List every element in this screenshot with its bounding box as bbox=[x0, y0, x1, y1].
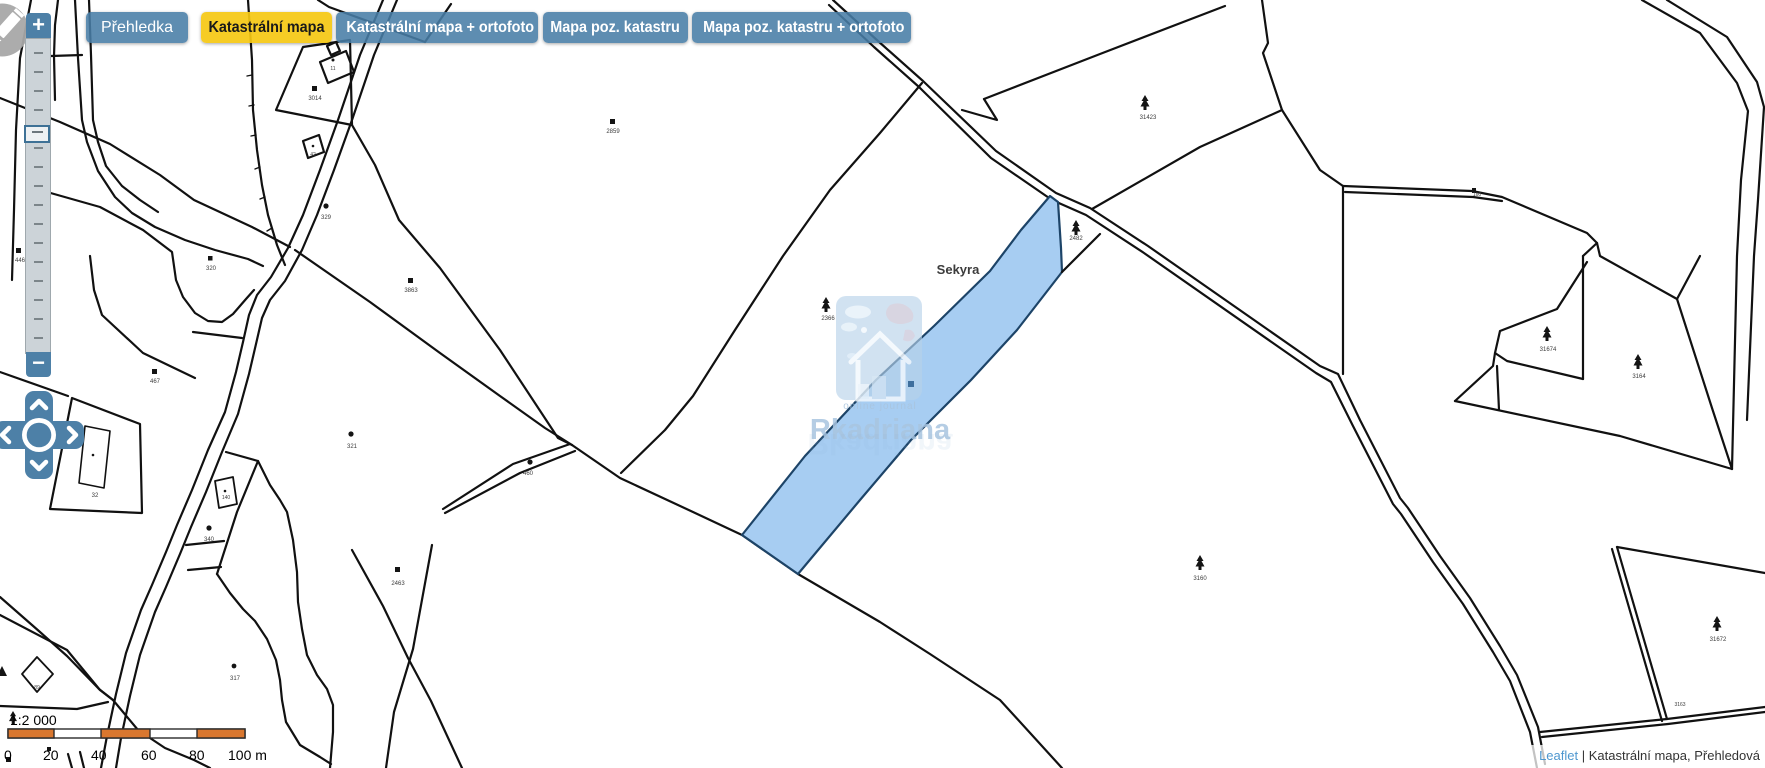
svg-text:Rkadriana: Rkadriana bbox=[807, 427, 952, 460]
svg-text:3163: 3163 bbox=[1674, 702, 1685, 708]
svg-text:online journal: online journal bbox=[843, 401, 917, 412]
svg-text:42: 42 bbox=[310, 152, 316, 158]
svg-text:89: 89 bbox=[34, 685, 40, 691]
svg-text:321: 321 bbox=[347, 444, 358, 450]
svg-text:3164: 3164 bbox=[1632, 374, 1646, 380]
svg-text:140: 140 bbox=[222, 495, 231, 501]
svg-text:320: 320 bbox=[206, 266, 217, 272]
svg-text:3863: 3863 bbox=[404, 288, 418, 294]
svg-text:460: 460 bbox=[523, 471, 534, 477]
svg-text:160: 160 bbox=[1473, 192, 1482, 198]
svg-text:2482: 2482 bbox=[1069, 236, 1083, 242]
svg-text:2463: 2463 bbox=[391, 581, 405, 587]
svg-text:329: 329 bbox=[321, 215, 332, 221]
svg-text:317: 317 bbox=[230, 676, 241, 682]
svg-text:31423: 31423 bbox=[1140, 115, 1157, 121]
svg-text:11: 11 bbox=[330, 66, 335, 72]
svg-text:3160: 3160 bbox=[1193, 576, 1207, 582]
svg-text:3014: 3014 bbox=[308, 96, 322, 102]
svg-text:Sekyra: Sekyra bbox=[937, 262, 980, 277]
svg-text:31674: 31674 bbox=[1540, 347, 1557, 353]
svg-text:467: 467 bbox=[150, 379, 161, 385]
svg-text:2366: 2366 bbox=[821, 316, 835, 322]
svg-text:340: 340 bbox=[204, 537, 215, 543]
svg-text:2859: 2859 bbox=[606, 129, 620, 135]
svg-text:32: 32 bbox=[92, 493, 99, 499]
svg-text:31672: 31672 bbox=[1710, 637, 1727, 643]
